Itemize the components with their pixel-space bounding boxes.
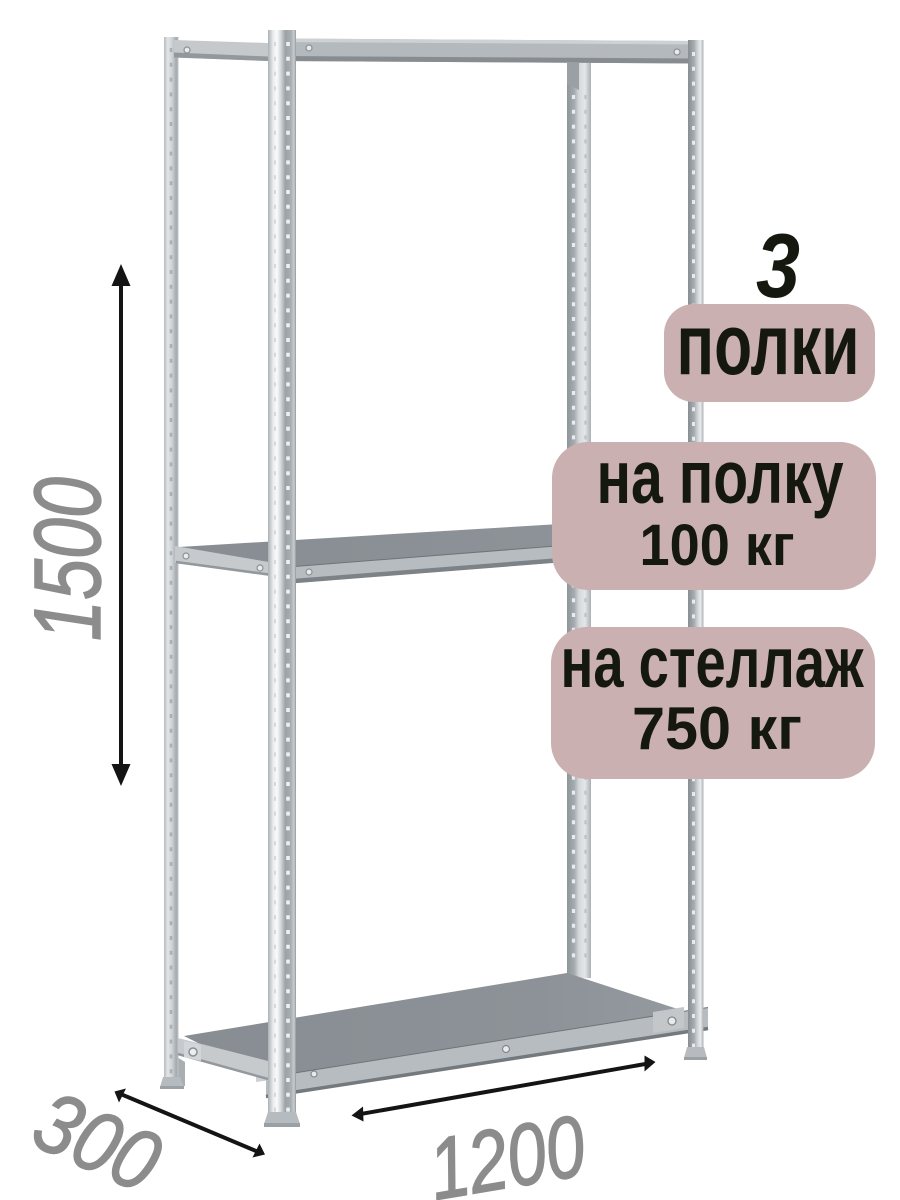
svg-text:750 кг: 750 кг <box>632 695 802 762</box>
svg-text:полки: полки <box>677 297 860 393</box>
svg-text:на стеллаж: на стеллаж <box>561 624 865 703</box>
svg-text:1500: 1500 <box>15 477 121 641</box>
svg-text:100 кг: 100 кг <box>640 513 795 578</box>
svg-text:на полку: на полку <box>597 435 844 519</box>
